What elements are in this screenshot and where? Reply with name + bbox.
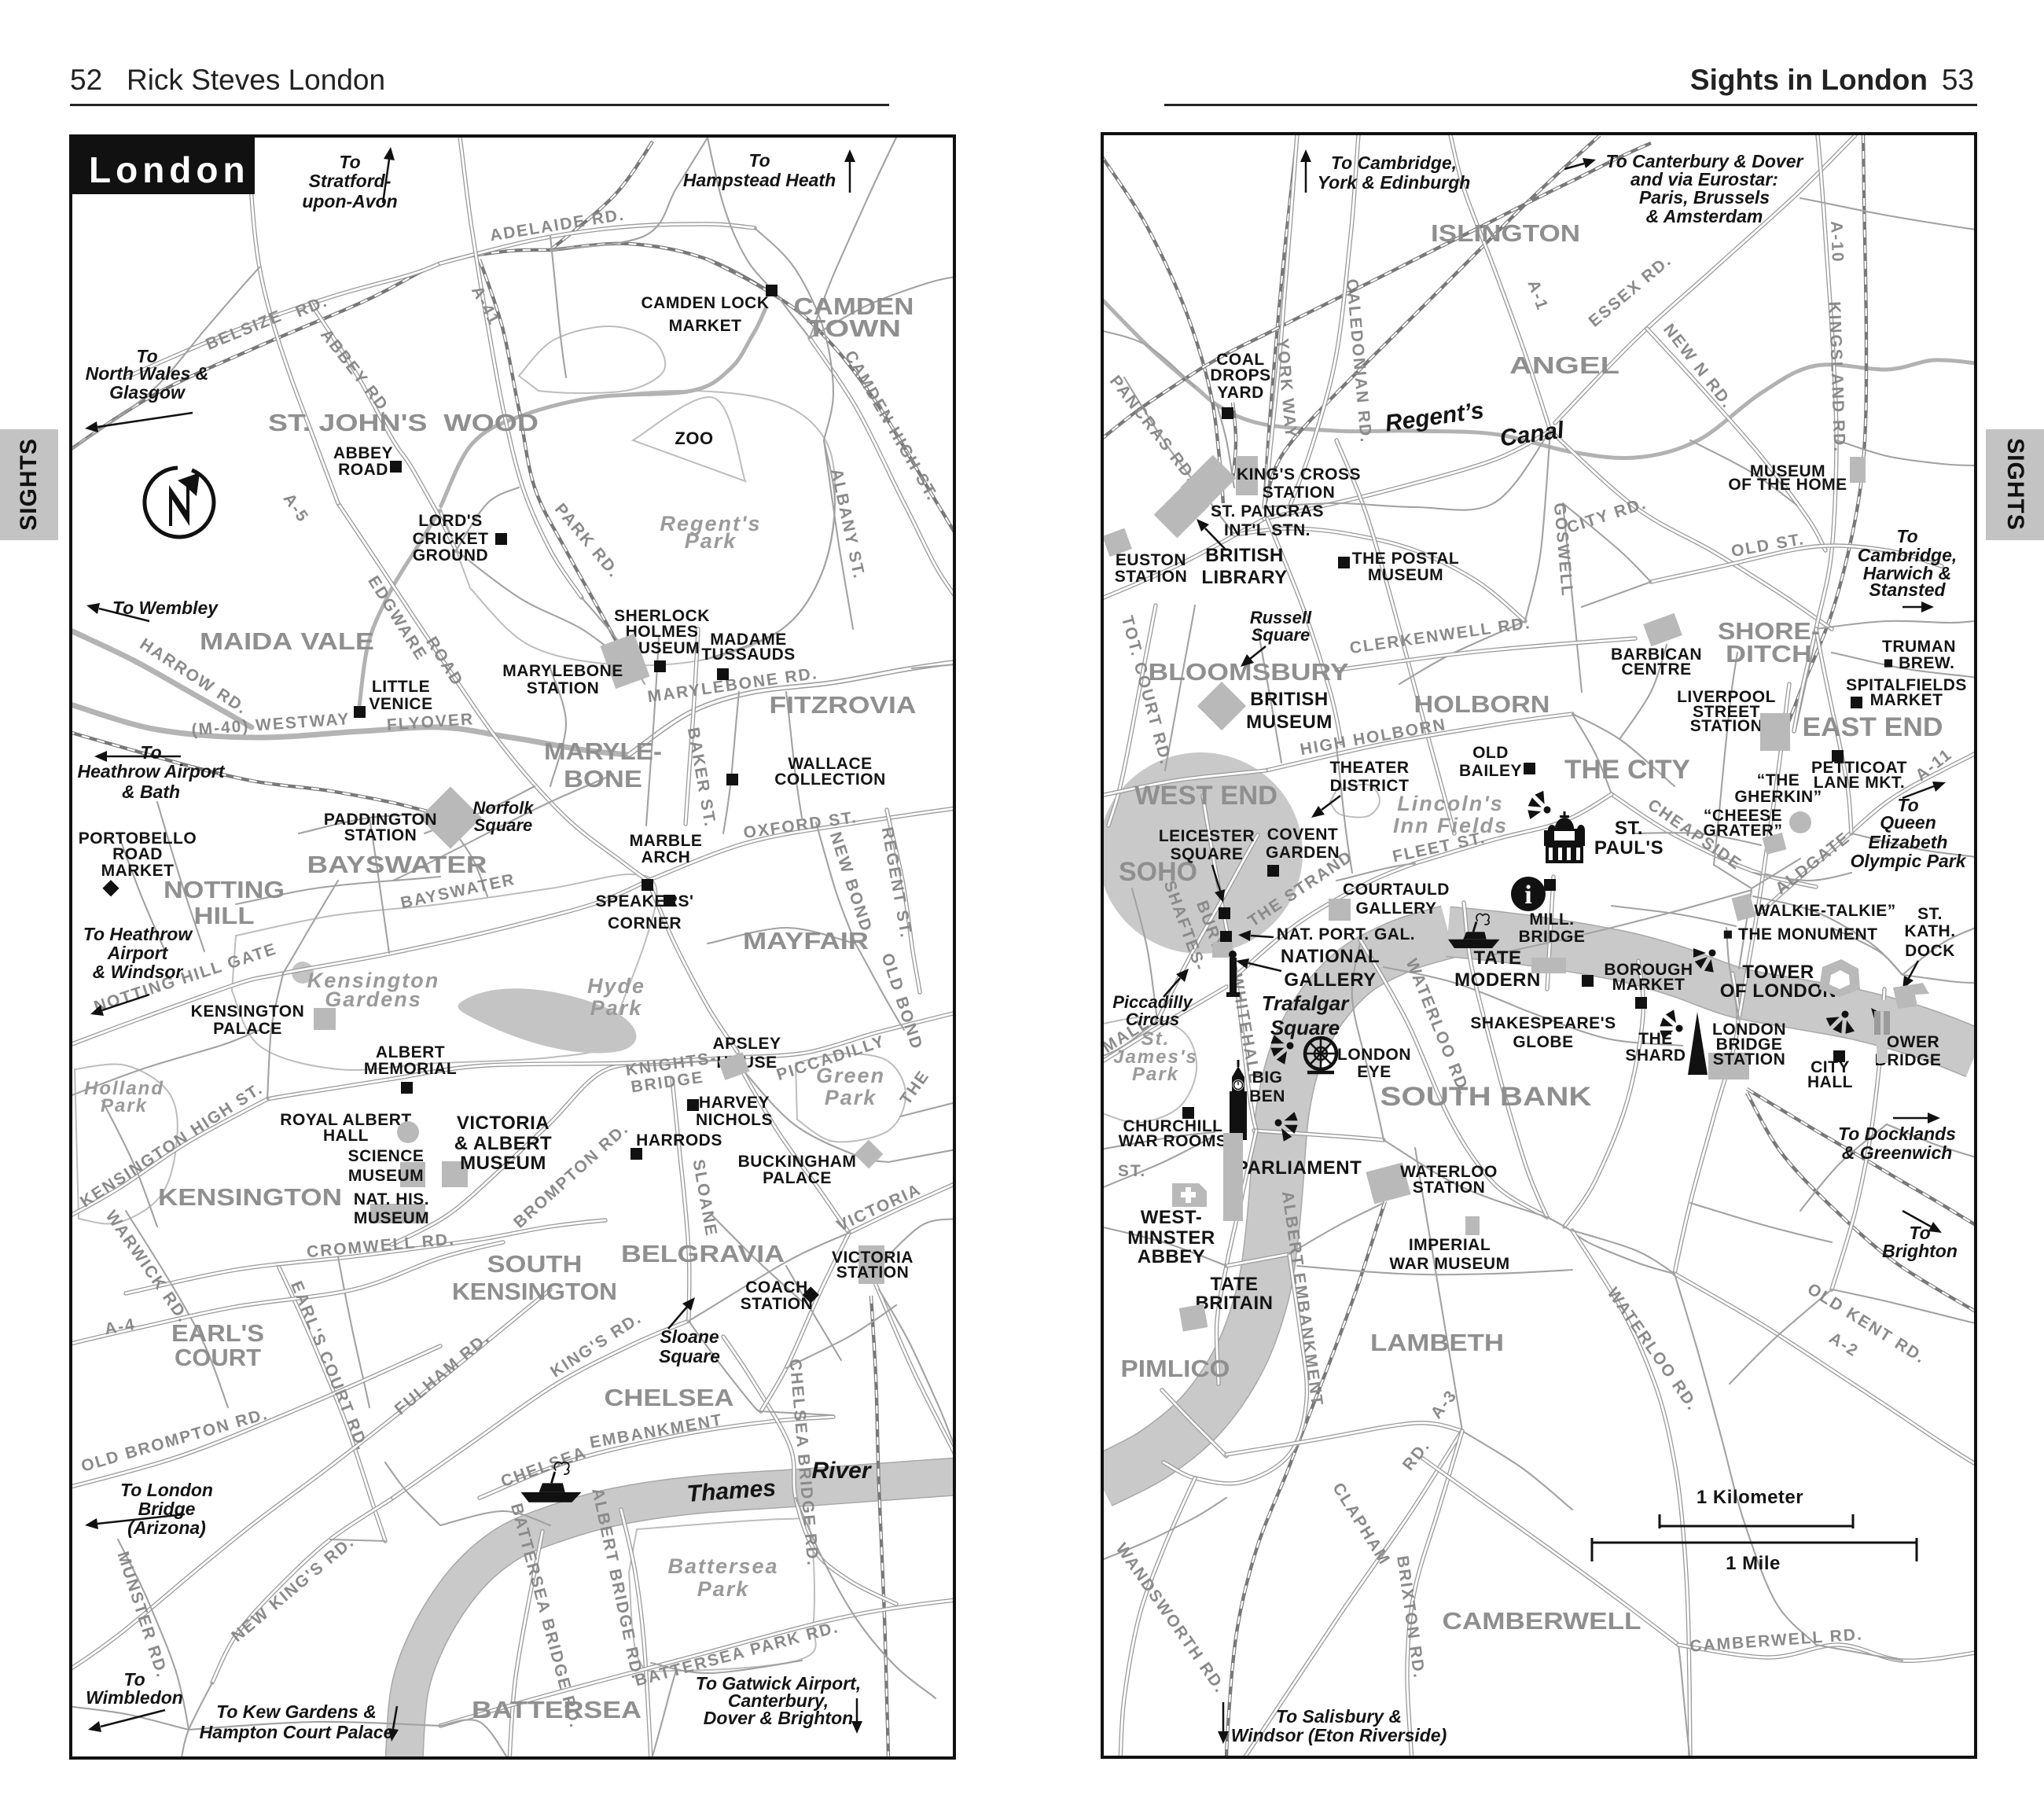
- svg-text:COVENT: COVENT: [1267, 826, 1339, 844]
- svg-text:IMPERIAL: IMPERIAL: [1409, 1236, 1491, 1254]
- svg-text:ST.: ST.: [1917, 905, 1943, 923]
- svg-text:THE POSTAL: THE POSTAL: [1352, 550, 1459, 568]
- svg-text:Inn Fields: Inn Fields: [1393, 814, 1508, 837]
- svg-text:LITTLE: LITTLE: [372, 678, 430, 696]
- svg-text:MARYLE-: MARYLE-: [544, 737, 662, 765]
- svg-text:Paris, Brussels: Paris, Brussels: [1639, 187, 1770, 208]
- svg-text:BEN: BEN: [1249, 1087, 1285, 1105]
- svg-text:NOTTING: NOTTING: [164, 876, 285, 903]
- svg-text:MAIDA VALE: MAIDA VALE: [200, 627, 374, 655]
- svg-text:MILL.: MILL.: [1529, 910, 1574, 929]
- svg-text:ST.: ST.: [1615, 818, 1643, 839]
- svg-text:BAILEY: BAILEY: [1459, 762, 1522, 780]
- svg-text:To London: To London: [120, 1480, 213, 1500]
- svg-text:Battersea: Battersea: [667, 1554, 778, 1578]
- svg-text:TATE: TATE: [1210, 1274, 1258, 1295]
- svg-text:COURTAULD: COURTAULD: [1343, 881, 1450, 899]
- svg-text:NAT. HIS.: NAT. HIS.: [354, 1190, 429, 1208]
- svg-text:MUSEUM: MUSEUM: [460, 1153, 546, 1174]
- svg-text:CENTRE: CENTRE: [1621, 660, 1691, 679]
- svg-text:MARKET: MARKET: [669, 317, 742, 335]
- svg-text:Park: Park: [825, 1086, 877, 1109]
- svg-text:GARDEN: GARDEN: [1266, 844, 1340, 862]
- svg-text:TRUMAN: TRUMAN: [1882, 638, 1956, 656]
- svg-text:THE CITY: THE CITY: [1564, 755, 1690, 785]
- svg-text:ANGEL: ANGEL: [1509, 351, 1619, 379]
- svg-text:MUSEUM: MUSEUM: [1246, 712, 1333, 733]
- svg-text:Airport: Airport: [107, 943, 169, 963]
- svg-text:STATION: STATION: [1713, 1050, 1786, 1068]
- svg-text:CAMDEN LOCK: CAMDEN LOCK: [642, 294, 770, 312]
- svg-text:(Arizona): (Arizona): [127, 1517, 206, 1538]
- svg-text:Stansted: Stansted: [1869, 579, 1946, 600]
- svg-text:EAST END: EAST END: [1803, 712, 1943, 742]
- svg-text:EARL'S: EARL'S: [171, 1319, 264, 1347]
- svg-text:MARKET: MARKET: [101, 862, 175, 880]
- svg-text:Hampstead Heath: Hampstead Heath: [683, 170, 836, 190]
- svg-text:TOWN: TOWN: [807, 314, 901, 342]
- svg-text:HOLBORN: HOLBORN: [1414, 690, 1550, 718]
- svg-text:Square: Square: [474, 815, 533, 835]
- svg-text:COLLECTION: COLLECTION: [774, 771, 886, 789]
- svg-text:SOUTH: SOUTH: [487, 1250, 583, 1278]
- svg-text:COACH: COACH: [745, 1278, 808, 1297]
- svg-text:MODERN: MODERN: [1454, 969, 1541, 991]
- svg-text:Olympic Park: Olympic Park: [1850, 851, 1966, 871]
- svg-text:ST.: ST.: [1118, 1162, 1146, 1180]
- svg-text:MARKET: MARKET: [1612, 976, 1686, 994]
- svg-text:BRITISH: BRITISH: [1205, 545, 1284, 566]
- svg-text:MEMORIAL: MEMORIAL: [364, 1060, 457, 1078]
- svg-text:Wimbledon: Wimbledon: [86, 1687, 183, 1708]
- svg-text:SIGHTS: SIGHTS: [16, 438, 42, 531]
- svg-text:DOCK: DOCK: [1905, 942, 1955, 960]
- svg-text:Park: Park: [685, 529, 737, 553]
- svg-text:& Bath: & Bath: [122, 782, 180, 802]
- svg-text:FITZROVIA: FITZROVIA: [770, 691, 917, 719]
- svg-text:To Docklands: To Docklands: [1838, 1124, 1956, 1144]
- svg-text:To Heathrow: To Heathrow: [83, 924, 194, 944]
- svg-text:1 Kilometer: 1 Kilometer: [1697, 1487, 1803, 1508]
- svg-text:”WALKIE-TALKIE”: ”WALKIE-TALKIE”: [1745, 902, 1895, 920]
- svg-text:BIG: BIG: [1252, 1068, 1283, 1087]
- svg-text:STATION: STATION: [527, 679, 600, 697]
- svg-text:To: To: [339, 152, 360, 172]
- svg-text:APSLEY: APSLEY: [712, 1035, 781, 1053]
- svg-text:KENSINGTON: KENSINGTON: [158, 1183, 342, 1211]
- svg-text:Trafalgar: Trafalgar: [1262, 991, 1351, 1015]
- svg-text:Hyde: Hyde: [587, 974, 645, 998]
- svg-text:DROPS: DROPS: [1210, 366, 1270, 384]
- svg-text:Dover & Brighton: Dover & Brighton: [704, 1708, 853, 1728]
- svg-text:ARCH: ARCH: [642, 848, 691, 866]
- svg-text:MARYLEBONE: MARYLEBONE: [502, 662, 623, 680]
- svg-text:COURT: COURT: [175, 1344, 261, 1371]
- svg-text:GALLERY: GALLERY: [1284, 969, 1376, 991]
- svg-text:ST. JOHN'S WOOD: ST. JOHN'S WOOD: [268, 409, 539, 436]
- svg-text:ROAD: ROAD: [112, 845, 163, 863]
- svg-text:“THE: “THE: [1757, 771, 1800, 789]
- svg-text:SHARD: SHARD: [1625, 1046, 1686, 1065]
- svg-text:DITCH: DITCH: [1726, 640, 1812, 668]
- svg-text:LAMBETH: LAMBETH: [1370, 1329, 1504, 1356]
- svg-text:DISTRICT: DISTRICT: [1330, 777, 1410, 795]
- svg-text:EUSTON: EUSTON: [1116, 551, 1186, 569]
- svg-text:STATION: STATION: [344, 826, 417, 844]
- svg-text:KENSINGTON: KENSINGTON: [452, 1278, 617, 1305]
- svg-text:BRIDGE: BRIDGE: [1519, 928, 1586, 946]
- svg-text:To: To: [748, 150, 770, 171]
- svg-text:ZOO: ZOO: [675, 429, 713, 448]
- svg-text:CRICKET: CRICKET: [413, 530, 489, 548]
- svg-text:BRITAIN: BRITAIN: [1195, 1293, 1273, 1314]
- svg-text:SIGHTS: SIGHTS: [2002, 438, 2028, 531]
- svg-text:TUSSAUDS: TUSSAUDS: [701, 646, 796, 664]
- svg-text:ROAD: ROAD: [338, 461, 388, 479]
- svg-text:■ BREW.: ■ BREW.: [1884, 654, 1955, 672]
- svg-text:River: River: [811, 1458, 872, 1484]
- svg-text:KING'S CROSS: KING'S CROSS: [1237, 465, 1361, 484]
- svg-text:LANE MKT.: LANE MKT.: [1814, 774, 1906, 792]
- svg-text:52 Rick Steves London: 52 Rick Steves London: [70, 64, 385, 96]
- svg-text:WAR MUSEUM: WAR MUSEUM: [1389, 1255, 1509, 1273]
- svg-text:ST. PANCRAS: ST. PANCRAS: [1211, 502, 1324, 520]
- svg-text:KENSINGTON: KENSINGTON: [191, 1002, 305, 1021]
- svg-text:SPEAKERS': SPEAKERS': [595, 892, 693, 910]
- svg-text:EYE: EYE: [1357, 1063, 1391, 1081]
- svg-text:53: 53: [1942, 64, 1974, 96]
- svg-text:& Greenwich: & Greenwich: [1842, 1142, 1953, 1163]
- svg-text:To Cambridge,: To Cambridge,: [1331, 153, 1457, 173]
- svg-text:WEST END: WEST END: [1134, 781, 1277, 811]
- svg-text:STATION: STATION: [1690, 717, 1763, 735]
- svg-text:Windsor (Eton Riverside): Windsor (Eton Riverside): [1231, 1725, 1447, 1745]
- svg-text:Gardens: Gardens: [325, 988, 422, 1011]
- svg-text:Park: Park: [590, 996, 643, 1020]
- svg-text:TOWER: TOWER: [1742, 962, 1814, 983]
- svg-text:STATION: STATION: [741, 1295, 814, 1313]
- svg-text:BRITISH: BRITISH: [1250, 689, 1329, 710]
- svg-text:& Windsor: & Windsor: [93, 962, 184, 982]
- svg-text:LEICESTER: LEICESTER: [1159, 827, 1255, 845]
- svg-text:OF LONDON: OF LONDON: [1720, 980, 1837, 1002]
- svg-text:North Wales &: North Wales &: [86, 363, 209, 384]
- svg-text:BATTERSEA: BATTERSEA: [472, 1696, 642, 1723]
- svg-text:HALL: HALL: [1807, 1073, 1853, 1091]
- svg-text:ABBEY: ABBEY: [1138, 1246, 1206, 1267]
- svg-text:SOUTH BANK: SOUTH BANK: [1380, 1082, 1593, 1112]
- svg-text:MINSTER: MINSTER: [1127, 1227, 1215, 1249]
- svg-text:GHERKIN”: GHERKIN”: [1734, 788, 1822, 806]
- svg-text:NATIONAL: NATIONAL: [1281, 946, 1380, 967]
- svg-text:TATE: TATE: [1473, 947, 1521, 969]
- svg-text:INT'L STN.: INT'L STN.: [1224, 521, 1311, 539]
- svg-text:To: To: [140, 742, 161, 763]
- svg-text:Park: Park: [1132, 1064, 1179, 1085]
- svg-text:To Kew Gardens &: To Kew Gardens &: [216, 1701, 377, 1722]
- svg-text:ABBEY: ABBEY: [333, 444, 393, 462]
- svg-text:■ THE MONUMENT: ■ THE MONUMENT: [1722, 925, 1877, 943]
- svg-text:PALACE: PALACE: [763, 1169, 832, 1187]
- svg-text:HOLMES: HOLMES: [626, 623, 699, 641]
- svg-text:HARVEY: HARVEY: [699, 1094, 770, 1112]
- svg-text:LORD'S: LORD'S: [418, 512, 483, 530]
- svg-text:STATION: STATION: [836, 1263, 910, 1282]
- svg-text:& Amsterdam: & Amsterdam: [1646, 206, 1763, 226]
- svg-text:MUSEUM: MUSEUM: [1368, 566, 1443, 584]
- svg-text:Park: Park: [697, 1577, 750, 1601]
- svg-text:To: To: [1896, 526, 1917, 546]
- svg-text:Queen: Queen: [1880, 812, 1936, 833]
- svg-text:SQUARE: SQUARE: [1171, 845, 1244, 863]
- svg-text:LONDON: LONDON: [1337, 1046, 1411, 1064]
- svg-text:Heathrow Airport: Heathrow Airport: [78, 761, 226, 782]
- svg-text:& ALBERT: & ALBERT: [454, 1133, 552, 1154]
- svg-text:i: i: [1524, 881, 1531, 910]
- svg-text:LIBRARY: LIBRARY: [1201, 567, 1287, 588]
- svg-text:CAMBERWELL: CAMBERWELL: [1443, 1607, 1641, 1635]
- svg-text:Sloane: Sloane: [660, 1326, 719, 1347]
- svg-text:STATION: STATION: [1115, 568, 1188, 586]
- svg-text:Lincoln's: Lincoln's: [1397, 792, 1503, 815]
- svg-text:BONE: BONE: [564, 765, 642, 793]
- svg-text:SHAKESPEARE'S: SHAKESPEARE'S: [1470, 1014, 1616, 1032]
- svg-text:Park: Park: [101, 1095, 148, 1116]
- svg-text:GLOBE: GLOBE: [1513, 1033, 1573, 1051]
- svg-text:York & Edinburgh: York & Edinburgh: [1318, 172, 1471, 193]
- svg-text:Square: Square: [659, 1346, 720, 1366]
- svg-text:VENICE: VENICE: [369, 695, 432, 713]
- svg-text:SCIENCE: SCIENCE: [348, 1147, 425, 1165]
- svg-text:BUCKINGHAM: BUCKINGHAM: [738, 1153, 857, 1171]
- svg-text:ISLINGTON: ISLINGTON: [1431, 219, 1580, 247]
- svg-text:Square: Square: [1270, 1016, 1340, 1039]
- svg-text:STATION: STATION: [1263, 484, 1336, 502]
- svg-text:NAT. PORT. GAL.: NAT. PORT. GAL.: [1277, 925, 1415, 943]
- svg-text:OLD: OLD: [1472, 744, 1509, 762]
- svg-text:MARKET: MARKET: [1870, 691, 1943, 709]
- svg-text:BAYSWATER: BAYSWATER: [307, 851, 487, 878]
- svg-text:Hampton Court Palace: Hampton Court Palace: [200, 1722, 394, 1742]
- svg-text:Circus: Circus: [1126, 1010, 1179, 1029]
- svg-text:VICTORIA: VICTORIA: [457, 1113, 550, 1134]
- svg-text:Square: Square: [1252, 625, 1311, 645]
- svg-text:WAR ROOMS: WAR ROOMS: [1119, 1132, 1228, 1150]
- svg-text:Brighton: Brighton: [1882, 1241, 1958, 1261]
- svg-text:HILL: HILL: [194, 902, 255, 929]
- svg-text:STATION: STATION: [1413, 1179, 1486, 1197]
- svg-text:London: London: [89, 149, 250, 190]
- svg-text:Stratford-: Stratford-: [309, 171, 392, 191]
- svg-text:NICHOLS: NICHOLS: [696, 1111, 773, 1129]
- svg-text:MUSEUM: MUSEUM: [354, 1209, 429, 1227]
- svg-text:GROUND: GROUND: [413, 546, 488, 565]
- svg-text:THEATER: THEATER: [1329, 759, 1409, 777]
- svg-text:CORNER: CORNER: [608, 914, 682, 932]
- svg-text:PALACE: PALACE: [213, 1020, 282, 1038]
- svg-text:KATH.: KATH.: [1904, 922, 1955, 940]
- svg-text:PARLIAMENT: PARLIAMENT: [1236, 1157, 1362, 1179]
- svg-text:YARD: YARD: [1217, 384, 1264, 402]
- svg-text:GALLERY: GALLERY: [1355, 899, 1436, 918]
- svg-text:OF THE HOME: OF THE HOME: [1728, 476, 1847, 494]
- svg-text:CHELSEA: CHELSEA: [605, 1384, 734, 1411]
- svg-text:Elizabeth: Elizabeth: [1869, 832, 1948, 852]
- svg-text:MARBLE: MARBLE: [630, 832, 703, 850]
- svg-text:HALL: HALL: [323, 1127, 369, 1145]
- svg-text:HARRODS: HARRODS: [636, 1131, 722, 1149]
- svg-text:PAUL'S: PAUL'S: [1594, 837, 1664, 859]
- svg-text:WEST-: WEST-: [1141, 1207, 1203, 1228]
- svg-text:MUSEUM: MUSEUM: [348, 1167, 424, 1185]
- svg-text:PIMLICO: PIMLICO: [1121, 1355, 1230, 1382]
- svg-text:ALBERT: ALBERT: [376, 1043, 445, 1061]
- svg-text:A-10: A-10: [1827, 221, 1847, 263]
- svg-text:MAYFAIR: MAYFAIR: [743, 927, 869, 954]
- svg-text:Sights in London: Sights in London: [1690, 64, 1928, 96]
- svg-text:BELGRAVIA: BELGRAVIA: [621, 1240, 785, 1267]
- svg-text:1 Mile: 1 Mile: [1726, 1553, 1781, 1574]
- svg-text:To Salisbury &: To Salisbury &: [1276, 1706, 1402, 1727]
- svg-text:Glasgow: Glasgow: [109, 382, 186, 403]
